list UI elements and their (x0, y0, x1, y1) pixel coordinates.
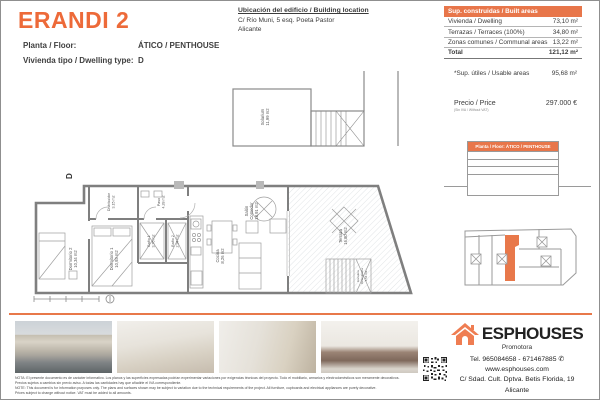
scale-bar (34, 296, 99, 302)
photo-building-exterior (15, 321, 112, 373)
row-label: Vivienda / Dwelling (448, 18, 502, 25)
dwelling-mark: D (65, 173, 74, 179)
address-line: C/ Sdad. Cult. Dptva. Betis Florida, 19 (442, 375, 592, 385)
dwelling-type-value: D (138, 56, 144, 65)
floor-value: ÁTICO / PENTHOUSE (138, 41, 219, 50)
svg-text:11,99 m2: 11,99 m2 (265, 108, 270, 126)
room-label-paso: Paso (157, 198, 161, 206)
photo-kitchen (219, 321, 316, 373)
svg-text:3,15 m2: 3,15 m2 (112, 196, 116, 209)
svg-text:16,80 m2: 16,80 m2 (343, 227, 348, 245)
building-location: Ubicación del edificio / Building locati… (238, 6, 369, 34)
location-title: Ubicación del edificio / Building locati… (238, 6, 369, 16)
elevation-floor-row (468, 151, 558, 159)
brand-block: ESPHOUSES Promotora Tel. 965084658 - 671… (442, 323, 592, 396)
row-value: 34,80 m² (553, 29, 578, 36)
svg-text:18,91 m2: 18,91 m2 (254, 202, 259, 220)
location-city: Alicante (238, 25, 369, 34)
terrace-surface (288, 186, 411, 293)
orange-divider (9, 313, 592, 315)
north-arrow-icon (106, 295, 114, 303)
room-label-distribuidor: Distribuidor (107, 192, 111, 211)
brand-name: ESPHOUSES (482, 324, 583, 344)
table-row: Vivienda / Dwelling 73,10 m² (444, 17, 582, 27)
table-total-row: Total 121,12 m² (444, 48, 582, 58)
brand-subtitle: Promotora (442, 344, 592, 351)
svg-text:10,34 m2: 10,34 m2 (73, 250, 78, 268)
photo-living-room (117, 321, 214, 373)
svg-text:3,76 m2: 3,76 m2 (152, 235, 156, 248)
photo-bedroom (321, 321, 418, 373)
row-value: 13,22 m² (553, 39, 578, 46)
city-line: Alicante (442, 386, 592, 396)
esphouses-house-icon (451, 323, 479, 345)
table-row: Zonas comunes / Communal areas 13,22 m² (444, 38, 582, 48)
total-label: Total (448, 49, 463, 56)
elevation-floor-row (468, 174, 558, 195)
website-line: www.esphouses.com (442, 365, 592, 375)
price-row: Precio / Price (Sin IVA / Without VAT) 2… (444, 100, 582, 112)
floor-plan: D Solarium 11,99 m2 Distribuidor 3,15 m2… (26, 71, 446, 316)
interior-walls (89, 181, 288, 293)
svg-text:10,93 m2: 10,93 m2 (114, 250, 119, 268)
built-areas-table: Sup. construidas / Built areas Vivienda … (444, 6, 582, 59)
row-label: Zonas comunes / Communal areas (448, 39, 547, 46)
floor-row: Planta / Floor: ÁTICO / PENTHOUSE (23, 41, 76, 50)
building-elevation-table: Planta / Floor: ÁTICO / PENTHOUSE (467, 141, 559, 196)
floor-label: Planta / Floor: (23, 41, 76, 50)
dwelling-type-label: Vivienda tipo / Dwelling type: (23, 56, 134, 65)
price-label: Precio / Price (454, 100, 496, 107)
table-row: Terrazas / Terraces (100%) 34,80 m² (444, 27, 582, 37)
elevation-floor-row (468, 166, 558, 174)
price-note: (Sin IVA / Without VAT) (454, 108, 496, 112)
room-label-bano1: Baño 1 (147, 235, 151, 246)
usable-areas-row: *Sup. útiles / Usable areas 95,68 m² (444, 70, 582, 77)
dwelling-type-row: Vivienda tipo / Dwelling type: D (23, 56, 134, 65)
usable-value: 95,68 m² (552, 70, 577, 77)
svg-text:8,26 m2: 8,26 m2 (220, 248, 225, 264)
price-value: 297.000 € (546, 100, 577, 112)
usable-label: *Sup. útiles / Usable areas (454, 70, 529, 77)
room-label-bano2: Baño 2 (171, 235, 175, 246)
location-street: C/ Río Muni, 5 esq. Poeta Pastor (238, 16, 369, 25)
elevation-floor-row (468, 159, 558, 167)
total-value: 121,12 m² (549, 49, 578, 56)
legal-disclaimer: NOTA: El presente documento es de caráct… (15, 376, 435, 396)
phone-line: Tel. 965084658 - 671467885 ✆ (442, 355, 592, 365)
solarium-level (233, 71, 398, 146)
svg-text:4,28 m2: 4,28 m2 (162, 196, 166, 209)
elevation-header: Planta / Floor: ÁTICO / PENTHOUSE (468, 142, 558, 151)
disclaimer-en-2: Prices subject to change without notice.… (15, 391, 435, 396)
spec-sheet-page: ERANDI 2 Planta / Floor: ÁTICO / PENTHOU… (0, 0, 600, 400)
page-title: ERANDI 2 (18, 7, 129, 34)
row-label: Terrazas / Terraces (100%) (448, 29, 525, 36)
built-areas-header: Sup. construidas / Built areas (444, 6, 582, 17)
svg-text:4,54 m2: 4,54 m2 (364, 270, 368, 281)
row-value: 73,10 m² (553, 18, 578, 25)
site-plan-sketch (449, 223, 589, 315)
svg-text:2,94 m2: 2,94 m2 (176, 235, 180, 248)
